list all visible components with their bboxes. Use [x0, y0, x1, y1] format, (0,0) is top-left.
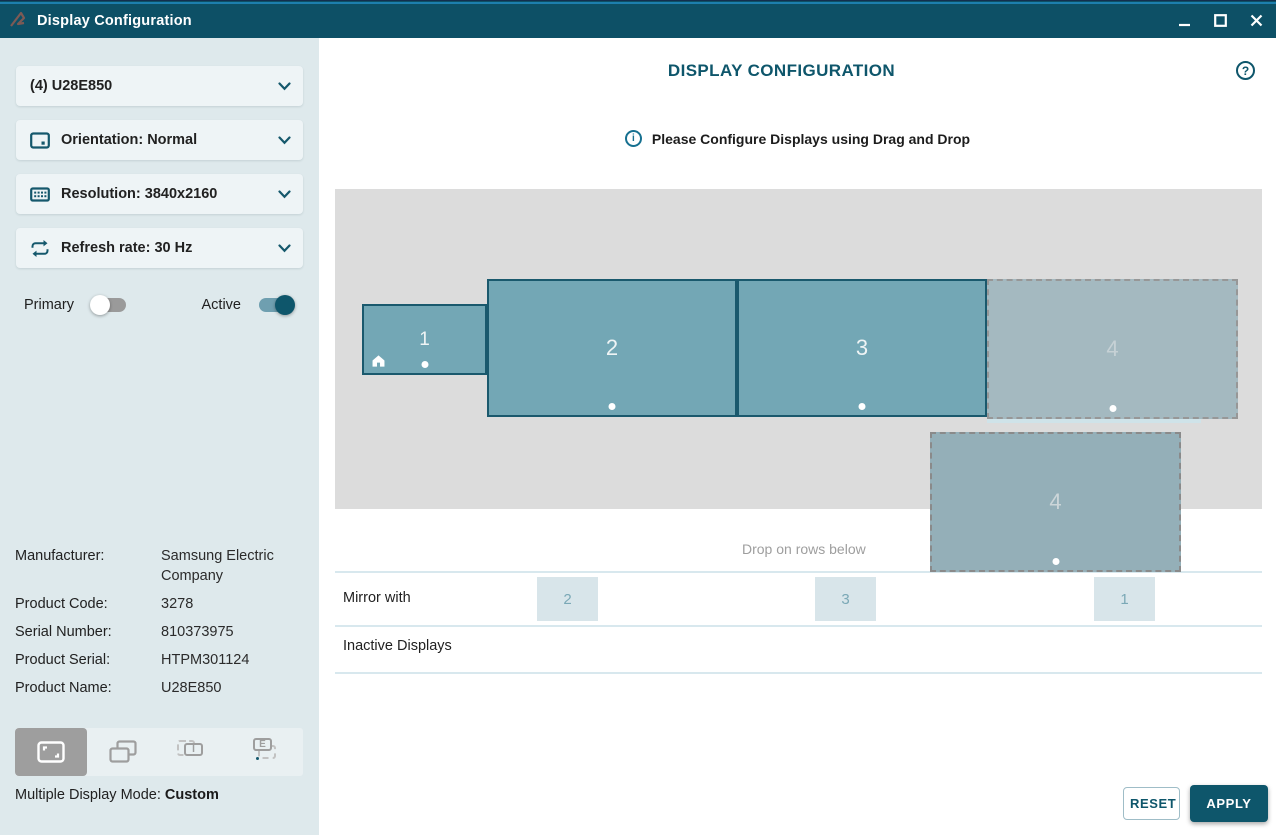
display-dot	[1109, 405, 1116, 412]
display-mode-external-only-button[interactable]: E	[231, 728, 303, 776]
active-toggle-group: Active	[202, 294, 296, 316]
primary-toggle[interactable]	[90, 294, 128, 316]
active-toggle-label: Active	[202, 297, 242, 313]
resolution-icon	[30, 186, 50, 203]
info-label: Manufacturer:	[15, 546, 161, 586]
refresh-rate-dropdown[interactable]: Refresh rate: 30 Hz	[16, 228, 303, 268]
device-info-block: Manufacturer: Samsung Electric Company P…	[15, 546, 305, 706]
chevron-down-icon	[278, 82, 291, 91]
orientation-label: Orientation: Normal	[61, 132, 197, 148]
display-2[interactable]: 2	[487, 279, 737, 417]
home-icon	[372, 355, 385, 367]
primary-toggle-label: Primary	[24, 297, 74, 313]
resolution-label: Resolution: 3840x2160	[61, 186, 217, 202]
mirror-target-number: 2	[563, 591, 571, 608]
display-number: 3	[856, 335, 868, 361]
reset-button[interactable]: RESET	[1123, 787, 1180, 820]
display-dot	[1052, 558, 1059, 565]
mode-dot-shape	[256, 757, 259, 760]
display-3[interactable]: 3	[737, 279, 987, 417]
app-logo-icon	[9, 11, 29, 28]
display-number: 1	[419, 329, 430, 351]
display-select-dropdown[interactable]: (4) U28E850	[16, 66, 303, 106]
info-value: 810373975	[161, 622, 305, 642]
mode-caption-value: Custom	[165, 787, 219, 803]
hint-row: i Please Configure Displays using Drag a…	[319, 130, 1276, 147]
display-number: 4	[1106, 336, 1118, 362]
display-4-dragging[interactable]: 4	[930, 432, 1181, 572]
drop-hint-text: Drop on rows below	[742, 541, 866, 557]
chevron-down-icon	[278, 190, 291, 199]
external-display-shape: E	[253, 738, 272, 751]
toggle-knob	[90, 295, 110, 315]
display-arrangement-canvas[interactable]: 1 2 3 4 4	[335, 189, 1262, 509]
display-mode-custom-icon	[37, 741, 65, 763]
maximize-button[interactable]	[1200, 1, 1240, 39]
refresh-rate-icon	[30, 240, 50, 257]
display-select-label: (4) U28E850	[30, 78, 112, 94]
toggle-knob	[275, 295, 295, 315]
display-dot	[609, 403, 616, 410]
display-mode-internal-only-button[interactable]: I	[159, 728, 231, 776]
minimize-button[interactable]	[1164, 1, 1204, 39]
info-label: Serial Number:	[15, 622, 161, 642]
info-row-serial-number: Serial Number: 810373975	[15, 622, 305, 642]
info-icon: i	[625, 130, 642, 147]
info-row-product-code: Product Code: 3278	[15, 594, 305, 614]
apply-button[interactable]: APPLY	[1190, 785, 1268, 822]
info-label: Product Serial:	[15, 650, 161, 670]
info-icon-glyph: i	[632, 133, 635, 144]
resolution-dropdown[interactable]: Resolution: 3840x2160	[16, 174, 303, 214]
orientation-dropdown[interactable]: Orientation: Normal	[16, 120, 303, 160]
page-title: DISPLAY CONFIGURATION	[319, 61, 1244, 81]
help-button[interactable]: ?	[1236, 61, 1255, 80]
mirror-target-2[interactable]: 2	[537, 577, 598, 621]
minimize-icon	[1178, 14, 1191, 27]
display-mode-custom-button[interactable]	[15, 728, 87, 776]
display-dot	[859, 403, 866, 410]
main-panel: DISPLAY CONFIGURATION ? i Please Configu…	[319, 38, 1276, 835]
internal-display-shape: I	[184, 743, 203, 756]
toggle-row: Primary Active	[24, 294, 295, 316]
multiple-display-mode-caption: Multiple Display Mode: Custom	[15, 787, 219, 803]
window-title: Display Configuration	[37, 1, 192, 39]
mode-caption-label: Multiple Display Mode:	[15, 787, 165, 803]
mirror-target-1[interactable]: 1	[1094, 577, 1155, 621]
display-dot	[421, 361, 428, 368]
sidebar: (4) U28E850 Orientation: Normal Resoluti…	[0, 38, 319, 835]
inactive-displays-label: Inactive Displays	[343, 638, 452, 654]
info-value: 3278	[161, 594, 305, 614]
help-icon: ?	[1242, 64, 1249, 78]
refresh-rate-label: Refresh rate: 30 Hz	[61, 240, 192, 256]
primary-toggle-group: Primary	[24, 294, 128, 316]
display-4-placeholder: 4	[987, 279, 1238, 419]
display-number: 4	[1049, 489, 1061, 515]
active-toggle[interactable]	[257, 294, 295, 316]
mirror-with-label: Mirror with	[343, 590, 411, 606]
close-button[interactable]	[1236, 1, 1276, 39]
info-value: Samsung Electric Company	[161, 546, 305, 586]
chevron-down-icon	[278, 136, 291, 145]
info-value: HTPM301124	[161, 650, 305, 670]
close-icon	[1250, 14, 1263, 27]
display-number: 2	[606, 335, 618, 361]
mirror-target-number: 1	[1120, 591, 1128, 608]
display-mode-bar: I E	[15, 728, 303, 776]
chevron-down-icon	[278, 244, 291, 253]
info-row-product-serial: Product Serial: HTPM301124	[15, 650, 305, 670]
row-divider	[335, 672, 1262, 674]
display-mode-clone-button[interactable]	[87, 728, 159, 776]
hint-text: Please Configure Displays using Drag and…	[652, 131, 970, 147]
external-letter: E	[259, 740, 266, 750]
display-1[interactable]: 1	[362, 304, 487, 375]
display-mode-clone-icon	[109, 740, 137, 764]
drop-target-highlight	[987, 419, 1201, 423]
info-row-product-name: Product Name: U28E850	[15, 678, 305, 698]
internal-letter: I	[192, 745, 195, 755]
info-label: Product Code:	[15, 594, 161, 614]
row-divider	[335, 625, 1262, 627]
info-label: Product Name:	[15, 678, 161, 698]
orientation-icon	[30, 132, 50, 149]
info-value: U28E850	[161, 678, 305, 698]
titlebar: Display Configuration	[0, 0, 1276, 38]
mirror-target-3[interactable]: 3	[815, 577, 876, 621]
maximize-icon	[1214, 14, 1227, 27]
info-row-manufacturer: Manufacturer: Samsung Electric Company	[15, 546, 305, 586]
mirror-target-number: 3	[841, 591, 849, 608]
